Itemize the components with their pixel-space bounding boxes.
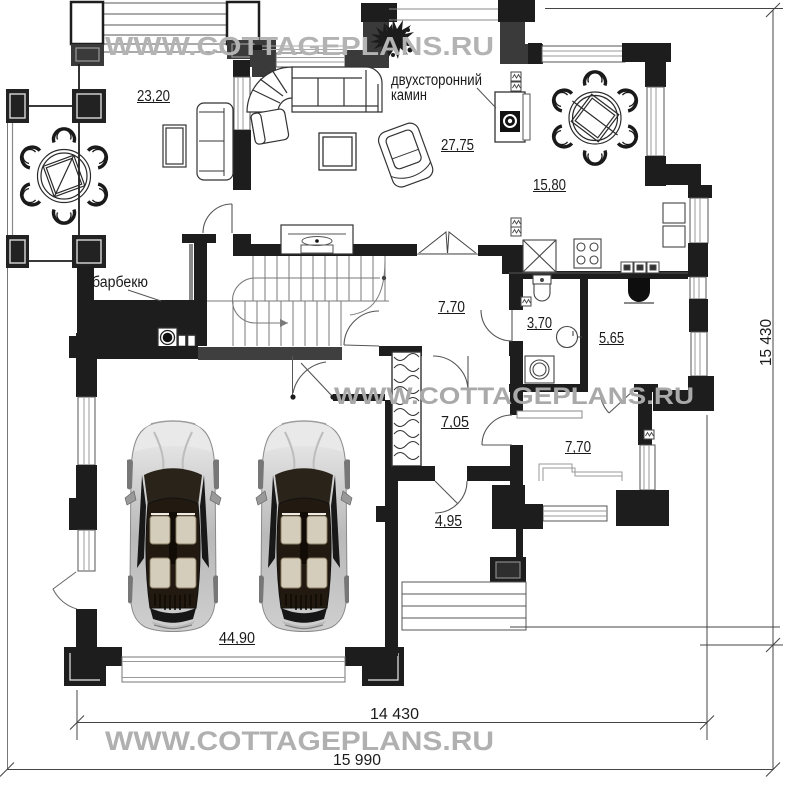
svg-text:WWW.COTTAGEPLANS.RU: WWW.COTTAGEPLANS.RU [105,726,494,756]
svg-text:WWW.COTTAGEPLANS.RU: WWW.COTTAGEPLANS.RU [334,383,694,410]
svg-text:барбекю: барбекю [92,274,148,291]
svg-text:камин: камин [391,87,427,104]
svg-text:15 430: 15 430 [758,319,775,366]
svg-text:15 990: 15 990 [333,752,381,769]
svg-text:WWW.COTTAGEPLANS.RU: WWW.COTTAGEPLANS.RU [105,33,494,61]
svg-text:14 430: 14 430 [370,706,419,723]
